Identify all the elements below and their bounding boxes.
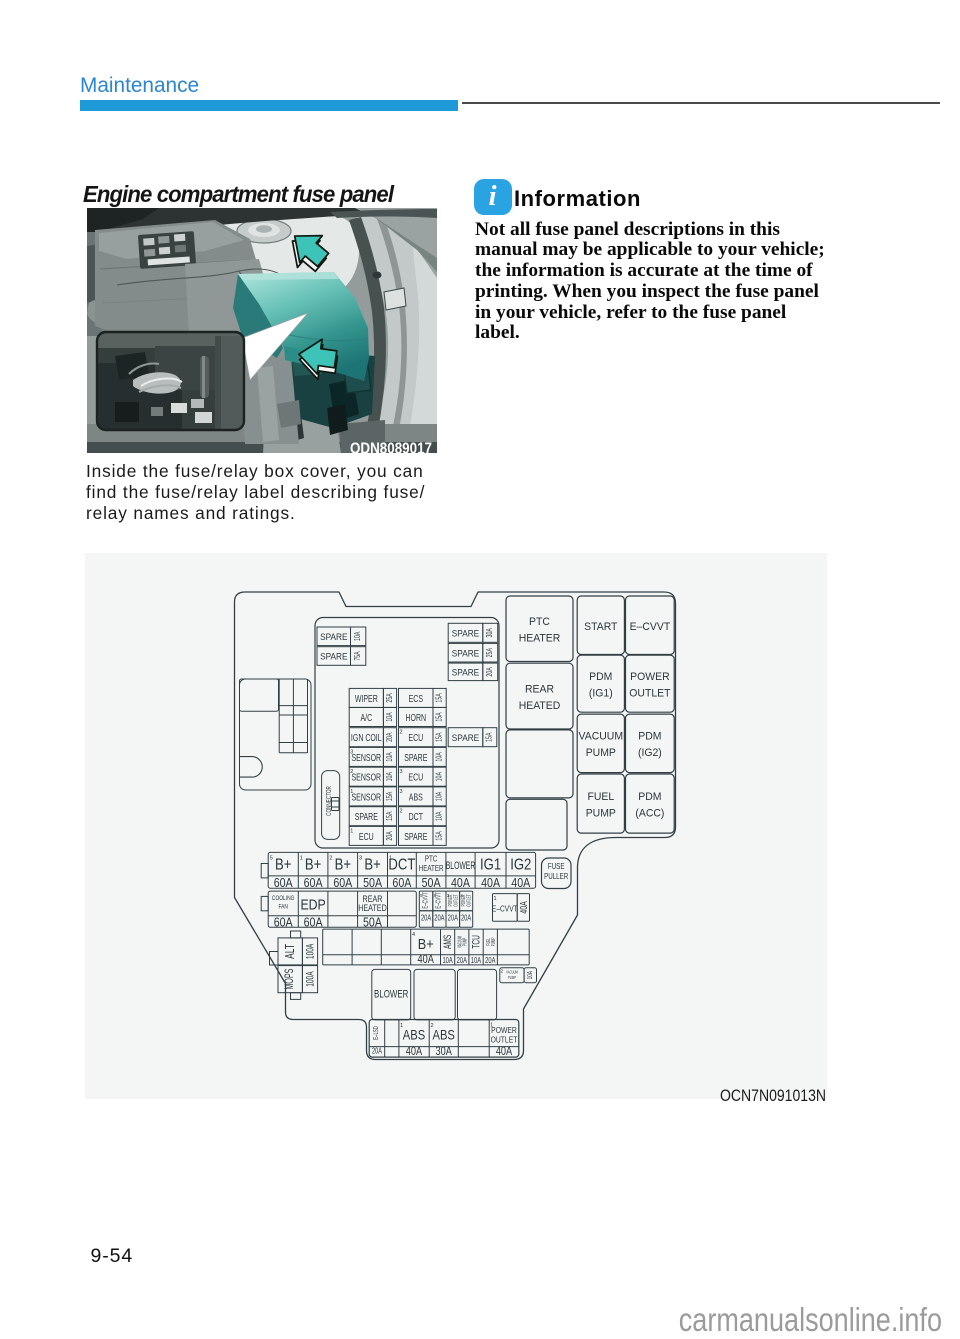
svg-text:ECU: ECU	[408, 771, 423, 783]
svg-text:E–CVVT: E–CVVT	[422, 892, 429, 909]
svg-text:60A: 60A	[333, 875, 352, 890]
svg-text:PTC: PTC	[425, 856, 437, 864]
svg-text:REAR: REAR	[525, 683, 554, 695]
svg-text:1: 1	[300, 856, 303, 862]
svg-text:100A: 100A	[304, 971, 316, 987]
svg-text:PDM: PDM	[638, 730, 661, 742]
svg-text:75A: 75A	[354, 651, 362, 661]
svg-text:10A: 10A	[386, 712, 394, 722]
svg-text:15A: 15A	[435, 693, 443, 703]
svg-text:PUMP: PUMP	[490, 938, 496, 947]
svg-text:ALT: ALT	[283, 944, 297, 959]
svg-text:SPARE: SPARE	[404, 831, 427, 843]
svg-text:FUSE: FUSE	[548, 864, 565, 872]
svg-text:PUMP: PUMP	[586, 807, 616, 819]
svg-text:10A: 10A	[435, 772, 443, 782]
svg-text:SPARE: SPARE	[452, 628, 480, 638]
svg-text:5: 5	[270, 856, 273, 862]
svg-text:25A: 25A	[486, 648, 494, 658]
svg-text:HORN: HORN	[405, 712, 426, 724]
svg-text:(IG1): (IG1)	[589, 687, 613, 699]
svg-text:PDM: PDM	[589, 671, 612, 683]
svg-text:PUMP: PUMP	[462, 938, 468, 946]
svg-text:20A: 20A	[386, 831, 394, 841]
svg-text:DCT: DCT	[388, 856, 415, 873]
svg-text:(IG2): (IG2)	[638, 747, 662, 759]
svg-text:3: 3	[400, 789, 403, 795]
svg-text:IGN COIL: IGN COIL	[351, 732, 382, 744]
svg-text:A/C: A/C	[360, 712, 372, 724]
svg-text:POWER: POWER	[491, 1025, 517, 1035]
svg-text:DCT: DCT	[409, 811, 424, 823]
svg-text:40A: 40A	[451, 875, 470, 890]
svg-text:ODN8089017: ODN8089017	[350, 441, 432, 454]
svg-text:FAN: FAN	[278, 904, 288, 911]
svg-text:BLOWER: BLOWER	[446, 859, 476, 871]
svg-text:20A: 20A	[421, 915, 432, 923]
svg-text:OUTLET: OUTLET	[466, 894, 472, 907]
svg-text:2: 2	[400, 730, 403, 736]
svg-text:SPARE: SPARE	[320, 632, 348, 642]
svg-text:15A: 15A	[386, 811, 394, 821]
svg-text:START: START	[584, 621, 618, 633]
svg-text:WIPER: WIPER	[355, 693, 378, 705]
svg-text:SENSOR: SENSOR	[352, 771, 382, 783]
svg-text:BLOWER: BLOWER	[374, 988, 408, 1001]
svg-text:2: 2	[350, 769, 353, 775]
svg-text:30A: 30A	[436, 1046, 452, 1058]
svg-text:ECU: ECU	[408, 732, 423, 744]
svg-text:E–CVVT: E–CVVT	[492, 903, 518, 913]
svg-text:1: 1	[389, 856, 392, 862]
svg-text:3: 3	[400, 769, 403, 775]
svg-text:PULLER: PULLER	[544, 874, 568, 882]
svg-text:E–CVVT: E–CVVT	[630, 621, 671, 633]
svg-text:10A: 10A	[435, 811, 443, 821]
svg-text:HEATED: HEATED	[519, 700, 561, 712]
svg-text:FUEL: FUEL	[587, 791, 614, 803]
svg-text:15A: 15A	[386, 792, 394, 802]
svg-text:B+: B+	[364, 856, 380, 873]
svg-text:20A: 20A	[486, 667, 494, 677]
svg-text:10A: 10A	[526, 970, 534, 979]
svg-text:2: 2	[431, 1023, 434, 1029]
svg-text:50A: 50A	[363, 914, 382, 929]
svg-text:4: 4	[412, 932, 415, 938]
svg-text:(ACC): (ACC)	[635, 807, 664, 819]
svg-text:40A: 40A	[496, 1046, 512, 1058]
svg-text:40A: 40A	[511, 875, 530, 890]
svg-text:20A: 20A	[434, 915, 445, 923]
svg-text:40A: 40A	[418, 954, 434, 966]
svg-text:POWER: POWER	[630, 671, 670, 683]
svg-text:SPARE: SPARE	[404, 752, 427, 764]
svg-text:ECS: ECS	[409, 693, 424, 705]
svg-text:30A: 30A	[486, 628, 494, 638]
svg-text:15A: 15A	[486, 732, 494, 742]
svg-text:15A: 15A	[435, 732, 443, 742]
svg-text:10A: 10A	[354, 631, 362, 641]
svg-text:2: 2	[501, 969, 504, 975]
svg-text:40A: 40A	[406, 1046, 422, 1058]
svg-text:20A: 20A	[457, 955, 467, 966]
svg-text:3: 3	[350, 749, 353, 755]
svg-text:ABS: ABS	[403, 1027, 425, 1042]
svg-text:60A: 60A	[304, 914, 323, 929]
svg-text:60A: 60A	[274, 875, 293, 890]
svg-text:60A: 60A	[304, 875, 323, 890]
svg-text:SENSOR: SENSOR	[352, 752, 382, 764]
svg-text:HEATER: HEATER	[519, 632, 561, 644]
svg-text:EDP: EDP	[300, 896, 325, 912]
svg-text:B+: B+	[335, 856, 351, 873]
svg-text:1: 1	[350, 789, 353, 795]
svg-text:60A: 60A	[274, 914, 293, 929]
svg-text:25A: 25A	[386, 693, 394, 703]
svg-text:50A: 50A	[422, 875, 441, 890]
svg-text:PUMP: PUMP	[586, 747, 616, 759]
svg-text:MOPS: MOPS	[284, 968, 297, 989]
svg-text:SENSOR: SENSOR	[352, 791, 382, 803]
svg-text:IG2: IG2	[510, 856, 531, 873]
svg-text:20A: 20A	[461, 915, 472, 923]
svg-text:PTC: PTC	[529, 616, 550, 628]
svg-text:10A: 10A	[435, 752, 443, 762]
svg-text:AMS: AMS	[442, 935, 454, 949]
svg-text:VACUUM: VACUUM	[506, 970, 518, 975]
svg-text:HEATED: HEATED	[358, 904, 387, 914]
svg-text:15A: 15A	[435, 831, 443, 841]
svg-text:1: 1	[490, 1023, 493, 1029]
svg-text:2: 2	[400, 809, 403, 815]
svg-text:B+: B+	[275, 856, 291, 873]
svg-text:OUTLET: OUTLET	[629, 687, 671, 699]
svg-text:IG1: IG1	[480, 856, 501, 873]
svg-text:SPARE: SPARE	[320, 651, 348, 661]
svg-text:20A: 20A	[485, 955, 495, 966]
svg-text:40A: 40A	[518, 901, 530, 914]
svg-text:10A: 10A	[442, 955, 452, 966]
svg-text:E–CVVT: E–CVVT	[436, 892, 443, 909]
svg-text:E–LSD: E–LSD	[373, 1026, 380, 1040]
svg-text:PDM: PDM	[638, 791, 661, 803]
svg-text:10A: 10A	[386, 772, 394, 782]
svg-text:20A: 20A	[372, 1048, 382, 1056]
svg-text:B+: B+	[305, 856, 321, 873]
svg-text:SPARE: SPARE	[355, 811, 378, 823]
svg-text:SPARE: SPARE	[452, 648, 480, 658]
svg-text:50A: 50A	[363, 875, 382, 890]
svg-text:ABS: ABS	[433, 1027, 455, 1042]
svg-text:1: 1	[400, 1023, 403, 1029]
svg-text:15A: 15A	[435, 712, 443, 722]
svg-text:SPARE: SPARE	[452, 667, 480, 677]
svg-text:20A: 20A	[448, 915, 459, 923]
svg-text:TCU: TCU	[470, 935, 482, 949]
svg-text:1: 1	[350, 828, 353, 834]
svg-text:2: 2	[329, 856, 332, 862]
svg-text:ECU: ECU	[359, 831, 374, 843]
svg-text:REAR: REAR	[363, 894, 383, 904]
svg-text:HEATER: HEATER	[419, 866, 444, 874]
svg-text:COOLING: COOLING	[272, 896, 295, 903]
svg-text:40A: 40A	[481, 875, 500, 890]
svg-text:VACUUM: VACUUM	[579, 730, 624, 742]
svg-text:1: 1	[494, 896, 497, 902]
svg-text:10A: 10A	[471, 955, 481, 966]
svg-text:SPARE: SPARE	[452, 732, 480, 742]
svg-text:OUTLET: OUTLET	[453, 894, 459, 907]
svg-text:B+: B+	[418, 935, 434, 952]
svg-text:10A: 10A	[435, 792, 443, 802]
svg-text:3: 3	[359, 856, 362, 862]
svg-text:100A: 100A	[304, 943, 316, 959]
svg-text:20A: 20A	[386, 732, 394, 742]
svg-text:PUMP: PUMP	[508, 975, 516, 980]
svg-text:ABS: ABS	[409, 791, 423, 803]
svg-text:10A: 10A	[386, 752, 394, 762]
svg-text:OUTLET: OUTLET	[491, 1035, 518, 1045]
svg-text:60A: 60A	[392, 875, 411, 890]
